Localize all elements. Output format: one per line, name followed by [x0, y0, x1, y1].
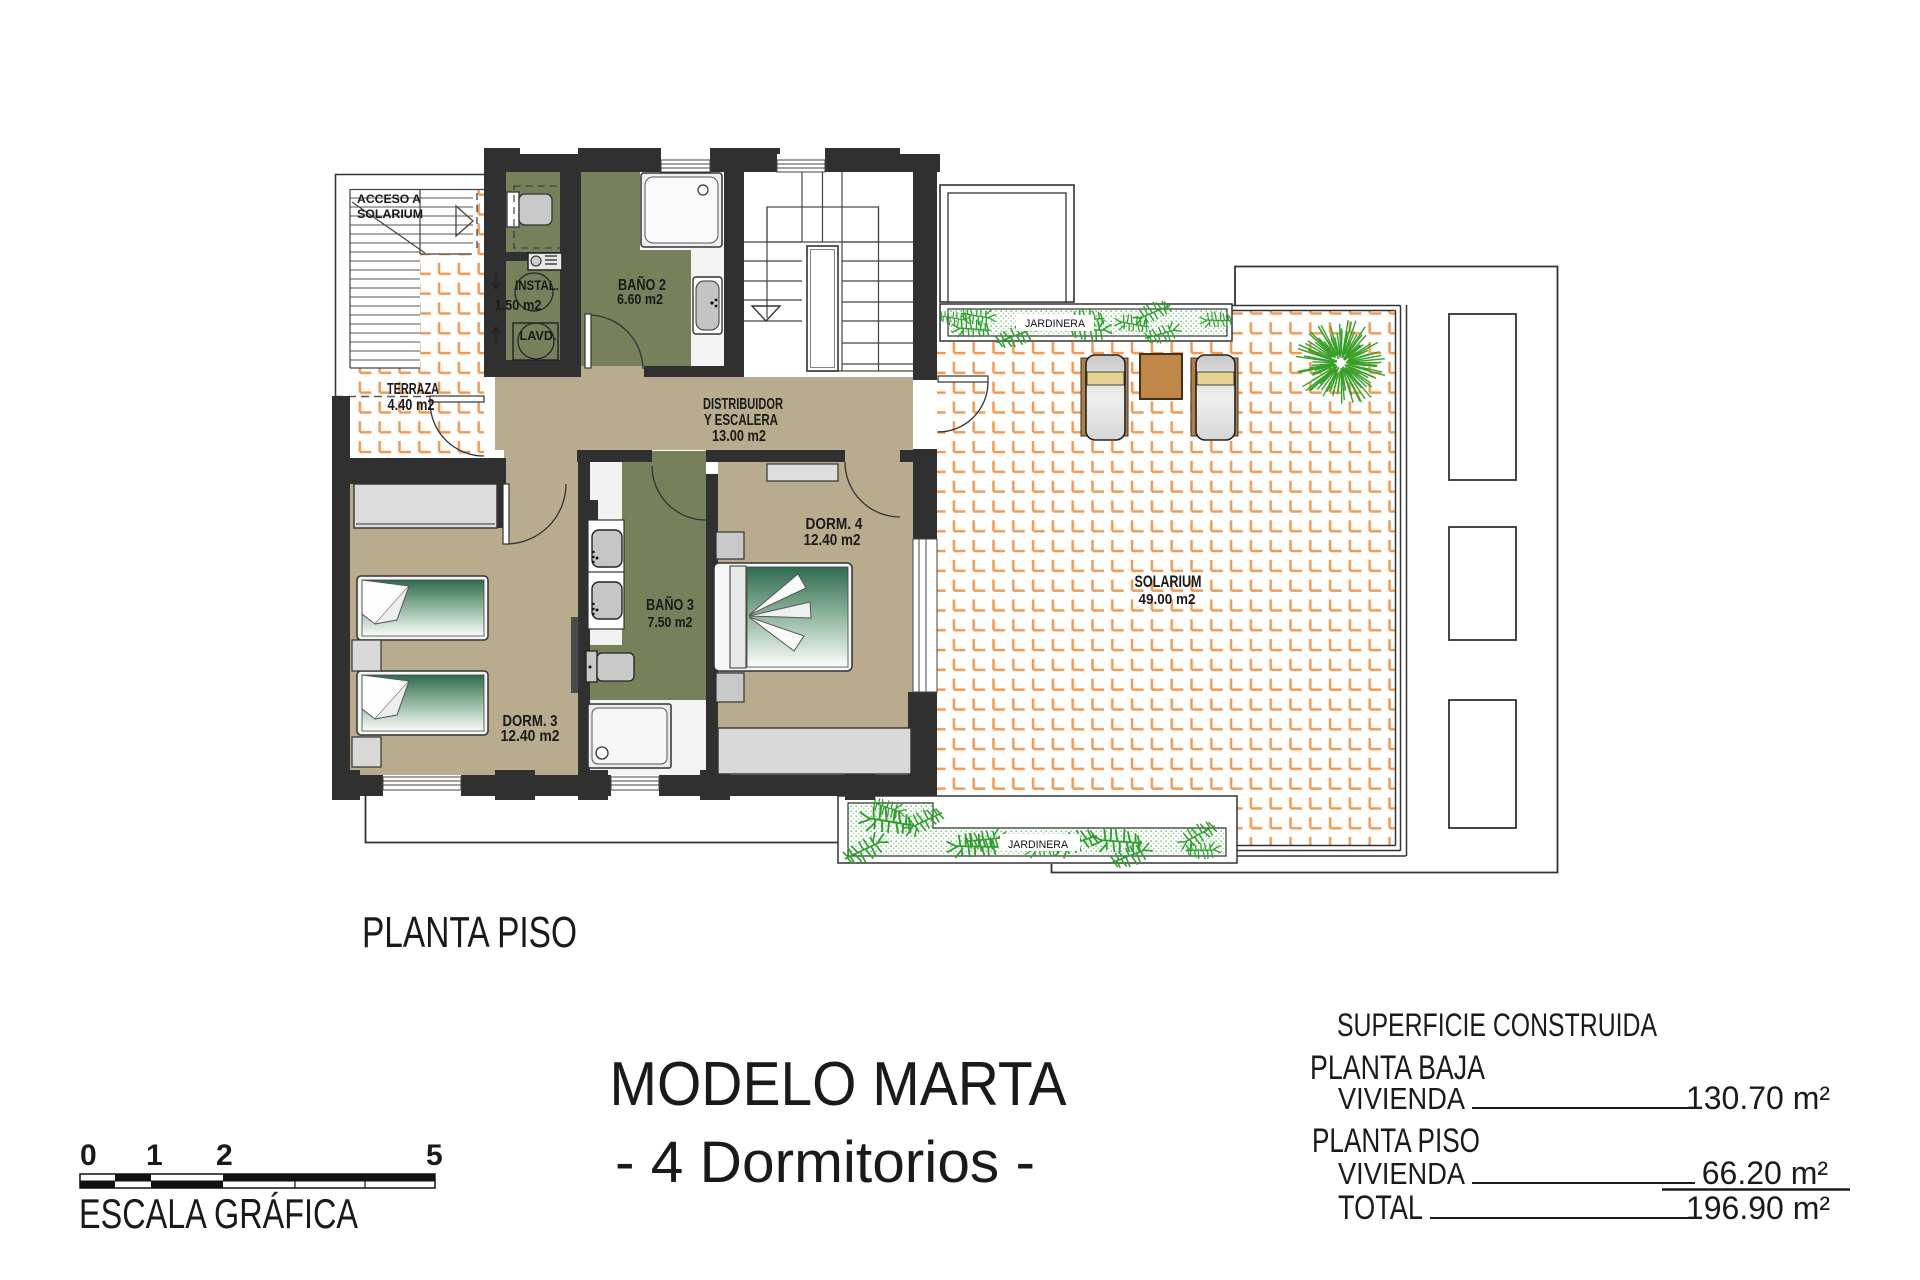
svg-text:1.50 m2: 1.50 m2	[495, 297, 542, 314]
svg-text:130.70 m²: 130.70 m²	[1686, 1080, 1830, 1116]
svg-text:DISTRIBUIDOR: DISTRIBUIDOR	[703, 396, 783, 413]
svg-text:DORM. 4: DORM. 4	[806, 516, 863, 533]
svg-text:66.20 m²: 66.20 m²	[1702, 1155, 1829, 1191]
svg-text:VIVIENDA: VIVIENDA	[1338, 1081, 1465, 1116]
svg-text:0: 0	[80, 1139, 97, 1172]
svg-text:ESCALA GRÁFICA: ESCALA GRÁFICA	[79, 1190, 358, 1237]
svg-text:Y ESCALERA: Y ESCALERA	[704, 412, 778, 429]
svg-text:5: 5	[426, 1139, 443, 1172]
svg-text:JARDINERA: JARDINERA	[1025, 318, 1086, 330]
svg-text:SOLARIUM: SOLARIUM	[357, 207, 423, 221]
svg-text:12.40 m2: 12.40 m2	[501, 728, 560, 745]
svg-text:TERRAZA: TERRAZA	[387, 381, 439, 398]
svg-text:6.60 m2: 6.60 m2	[617, 291, 663, 308]
svg-text:JARDINERA: JARDINERA	[1008, 839, 1069, 851]
svg-text:4.40 m2: 4.40 m2	[388, 397, 435, 414]
svg-text:INSTAL.: INSTAL.	[515, 277, 559, 293]
svg-text:ACCESO A: ACCESO A	[357, 192, 421, 206]
svg-text:SUPERFICIE CONSTRUIDA: SUPERFICIE CONSTRUIDA	[1337, 1007, 1658, 1043]
svg-text:1: 1	[146, 1139, 163, 1172]
svg-text:13.00 m2: 13.00 m2	[712, 428, 766, 445]
svg-text:- 4 Dormitorios -: - 4 Dormitorios -	[615, 1130, 1035, 1195]
svg-text:PLANTA PISO: PLANTA PISO	[1312, 1122, 1480, 1160]
svg-text:2: 2	[216, 1139, 233, 1172]
svg-text:VIVIENDA: VIVIENDA	[1338, 1156, 1465, 1191]
svg-text:196.90 m²: 196.90 m²	[1686, 1190, 1830, 1226]
svg-text:12.40 m2: 12.40 m2	[804, 532, 861, 549]
svg-text:49.00 m2: 49.00 m2	[1139, 591, 1196, 608]
svg-text:PLANTA PISO: PLANTA PISO	[362, 908, 577, 957]
svg-text:TOTAL: TOTAL	[1338, 1189, 1423, 1227]
svg-text:MODELO MARTA: MODELO MARTA	[610, 1050, 1068, 1119]
svg-text:BAÑO 3: BAÑO 3	[646, 594, 694, 614]
svg-text:7.50 m2: 7.50 m2	[648, 614, 693, 631]
svg-text:LAVD.: LAVD.	[520, 328, 557, 343]
svg-text:SOLARIUM: SOLARIUM	[1135, 572, 1202, 591]
